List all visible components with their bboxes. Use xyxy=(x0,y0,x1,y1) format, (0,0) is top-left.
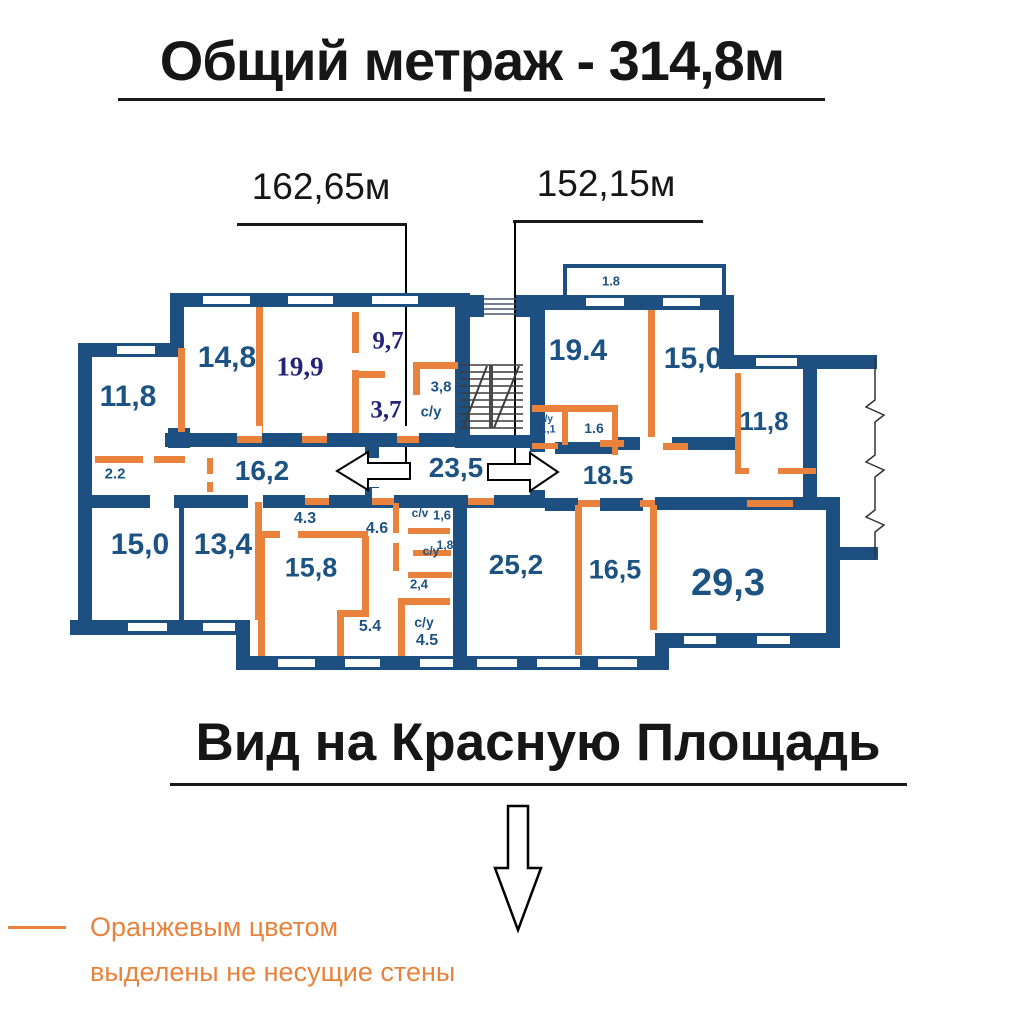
floor-plan-page: Общий метраж - 314,8м 162,65м 152,15м Ви… xyxy=(0,0,1024,1010)
view-title: Вид на Красную Площадь xyxy=(168,712,908,773)
room-area-label-18-5: 18.5 xyxy=(583,462,634,488)
room-area-label-25-2: 25,2 xyxy=(489,551,544,579)
bathroom-label-bottom-left: с/у xyxy=(414,615,433,629)
right-dimension-underline xyxy=(513,220,703,223)
room-area-label-9-7: 9,7 xyxy=(372,329,403,354)
room-area-label-5-4: 5.4 xyxy=(359,619,381,635)
room-area-label-19-4: 19.4 xyxy=(549,336,607,366)
room-area-label-1-8: 1,8 xyxy=(437,539,454,551)
room-area-label-15-0-right: 15,0 xyxy=(664,344,722,374)
left-wing-dimension: 162,65м xyxy=(231,166,411,208)
room-area-label-4-5: 4.5 xyxy=(416,633,438,649)
balcony-zigzag-line xyxy=(866,358,884,558)
room-area-label-15-0-left: 15,0 xyxy=(111,530,169,560)
legend-line-2: выделены не несущие стены xyxy=(90,957,455,988)
arrow-right-icon xyxy=(488,453,558,491)
entrance-bridge xyxy=(484,299,516,314)
room-area-label-23-5: 23,5 xyxy=(429,454,484,482)
legend-line-1: Оранжевым цветом xyxy=(90,912,338,943)
room-area-label-29-3: 29,3 xyxy=(691,564,765,602)
title-underline xyxy=(118,98,825,101)
room-area-label-3-7: 3,7 xyxy=(370,398,401,423)
floor-plan-drawing xyxy=(0,0,1024,1010)
room-area-label-1-6-left: 1,6 xyxy=(433,509,451,522)
room-area-label-19-9: 19,9 xyxy=(276,354,323,381)
page-title: Общий метраж - 314,8м xyxy=(110,28,834,93)
room-area-label-2-4: 2,4 xyxy=(410,578,428,591)
bathroom-label-cv: с/v xyxy=(412,507,429,519)
legend-orange-line-sample xyxy=(8,926,66,929)
left-dimension-underline xyxy=(237,223,407,226)
room-area-label-1-1: 1,1 xyxy=(540,425,555,436)
room-area-label-11-8-right: 11,8 xyxy=(739,408,788,434)
room-area-label-11-8-left: 11,8 xyxy=(100,382,157,412)
room-area-label-3-8: 3,8 xyxy=(431,380,452,395)
arrow-down-icon xyxy=(495,806,541,930)
room-area-label-2-2: 2.2 xyxy=(105,467,126,482)
room-area-label-1-6-right: 1.6 xyxy=(584,421,603,435)
balcony-outline xyxy=(565,266,724,297)
room-area-label-4-3: 4.3 xyxy=(294,511,316,527)
right-wing-dimension: 152,15м xyxy=(508,163,704,205)
balcony-area-label-1-8: 1.8 xyxy=(602,275,620,288)
room-area-label-14-8: 14,8 xyxy=(198,343,256,373)
footer-underline xyxy=(170,783,907,786)
room-area-label-13-4: 13,4 xyxy=(194,530,252,560)
bathroom-label-top-left: с/у xyxy=(421,405,442,420)
room-area-label-16-5: 16,5 xyxy=(589,557,642,584)
room-area-label-4-6: 4.6 xyxy=(366,521,388,537)
room-area-label-16-2: 16,2 xyxy=(235,457,290,485)
room-area-label-15-8: 15,8 xyxy=(285,555,338,582)
